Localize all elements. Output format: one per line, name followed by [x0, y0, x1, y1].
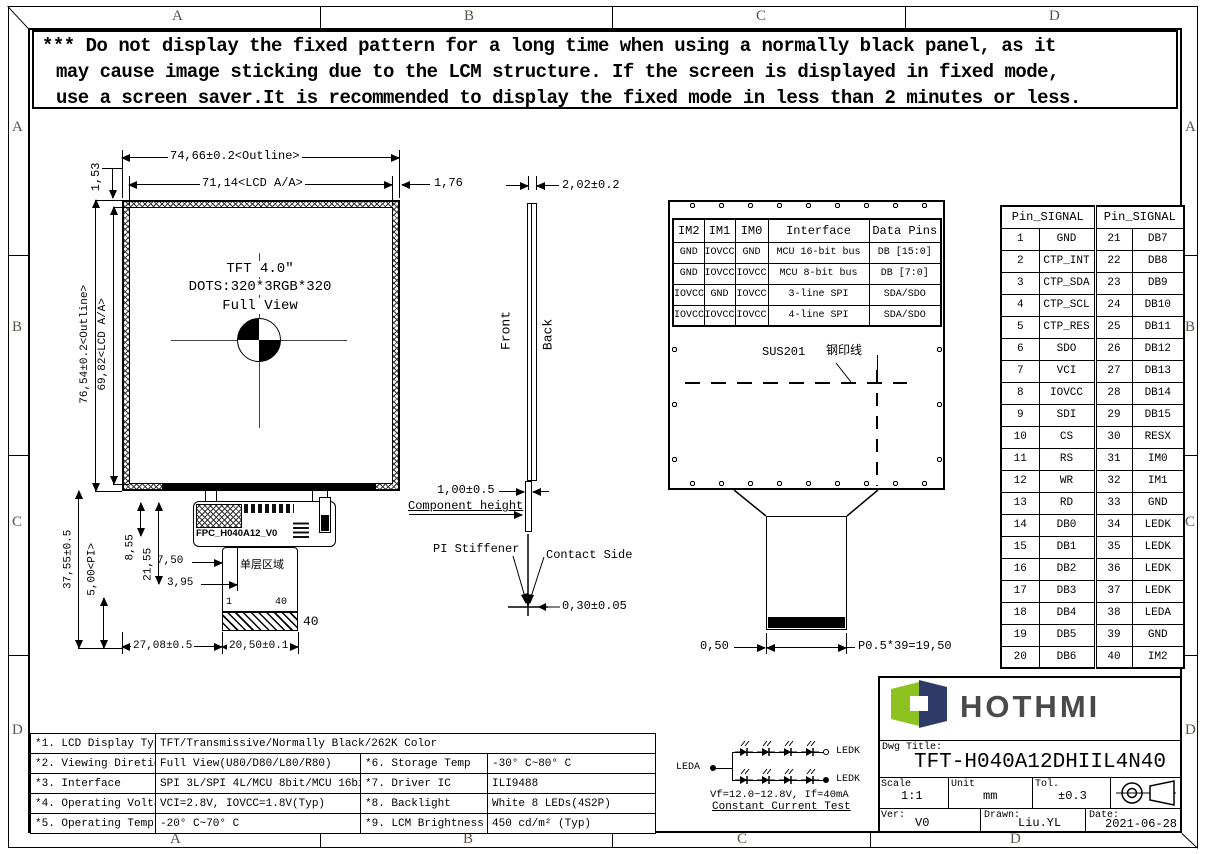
table-cell: IOVCC: [735, 263, 768, 284]
table-row: 14DB034LEDK: [1001, 514, 1184, 536]
dimension-line: [499, 491, 524, 492]
table-cell: LEDK: [1132, 580, 1184, 602]
table-cell: LEDK: [1132, 514, 1184, 536]
fpc-pin40-label: 40: [275, 597, 287, 609]
dim-fpc-2708: 27,08±0.5: [131, 640, 194, 653]
led-icon: [757, 740, 775, 756]
table-cell: 35: [1095, 536, 1132, 558]
dim-top-border: 1,53: [90, 162, 104, 192]
table-cell: IM0: [1132, 448, 1184, 470]
panel-dots-text: DOTS:320*3RGB*320: [180, 279, 340, 295]
table-row: IOVCCIOVCCIOVCC4-line SPISDA/SDO: [673, 305, 941, 326]
fpc-contact-zone: [222, 612, 298, 631]
table-cell: MCU 8-bit bus: [768, 263, 869, 284]
table-cell: 31: [1095, 448, 1132, 470]
table-cell: IOVCC: [704, 305, 735, 326]
table-cell: IOVCC: [704, 242, 735, 263]
leader-line: [846, 647, 855, 648]
dim-right-border: 1,76: [434, 177, 463, 191]
leader-line: [409, 514, 522, 515]
circuit-wire: [732, 752, 733, 780]
table-row: 13RD33GND: [1001, 492, 1184, 514]
title-block-divider: [1032, 777, 1033, 808]
table-row: *4. Operating VoltageVCI=2.8V, IOVCC=1.8…: [31, 794, 656, 814]
table-cell: VCI: [1039, 360, 1095, 382]
fpc-component-strip: [244, 504, 294, 513]
unit-label: Unit: [951, 779, 975, 791]
specification-table: *1. LCD Display Type TFT/Transmissive/No…: [30, 733, 656, 834]
drawn-label: Drawn:: [984, 810, 1020, 822]
lcd-bottom-ledge: [162, 484, 376, 491]
grid-letter-left: B: [12, 319, 22, 336]
table-cell: DB6: [1039, 646, 1095, 668]
extension-line: [95, 200, 122, 201]
table-row: 9SDI29DB15: [1001, 404, 1184, 426]
im2-header: IM2: [673, 219, 704, 242]
ver-value: V0: [915, 817, 929, 831]
table-cell: DB4: [1039, 602, 1095, 624]
title-block-divider: [1110, 777, 1111, 808]
scale-value: 1:1: [901, 790, 923, 804]
side-view-layer-line: [531, 204, 532, 480]
table-cell: IOVCC: [673, 305, 704, 326]
hothmi-logo-icon: [888, 680, 950, 728]
dimension-line: [192, 562, 222, 563]
frame-divider: [320, 833, 321, 848]
extension-line: [78, 648, 122, 649]
stamp-dash-line-v: [876, 370, 878, 486]
table-cell: 20: [1001, 646, 1039, 668]
unit-value: mm: [983, 790, 997, 804]
table-cell: GND: [673, 263, 704, 284]
frame-divider: [905, 6, 906, 28]
table-row: 17DB337LEDK: [1001, 580, 1184, 602]
fpc-single-layer-label: 单层区域: [240, 560, 284, 573]
table-row: 2CTP_INT22DB8: [1001, 250, 1184, 272]
spec-label: *1. LCD Display Type: [31, 734, 156, 754]
dimension-line: [103, 598, 104, 648]
dim-pin-pitch: P0.5*39=19,50: [858, 640, 952, 654]
projection-symbol-icon: [1116, 780, 1178, 806]
table-cell: *8. Backlight: [361, 794, 488, 814]
grid-letter-top: A: [172, 8, 183, 25]
spec-value: TFT/Transmissive/Normally Black/262K Col…: [156, 734, 656, 754]
fpc-capacitor-fill: [321, 515, 329, 531]
table-cell: 40: [1095, 646, 1132, 668]
table-row: 1GND21DB7: [1001, 228, 1184, 250]
grid-letter-bottom: C: [737, 831, 747, 848]
table-cell: 24: [1095, 294, 1132, 316]
table-cell: GND: [1132, 492, 1184, 514]
extension-line: [102, 168, 122, 169]
fpc-capacitor-label: AK: [321, 508, 327, 514]
stamp-dash-line-h: [685, 382, 907, 384]
grid-letter-left: D: [12, 722, 23, 739]
table-row: *2. Viewing DiretionFull View(U80/D80/L8…: [31, 754, 656, 774]
table-cell: 37: [1095, 580, 1132, 602]
table-cell: 15: [1001, 536, 1039, 558]
fpc-stub: [205, 491, 217, 501]
table-cell: 38: [1095, 602, 1132, 624]
panel-size-text: TFT 4.0″: [195, 261, 325, 277]
title-block-divider: [878, 808, 1182, 809]
led-icon: [735, 768, 753, 784]
table-row: 11RS31IM0: [1001, 448, 1184, 470]
table-cell: 6: [1001, 338, 1039, 360]
table-cell: 32: [1095, 470, 1132, 492]
table-cell: GND: [1132, 624, 1184, 646]
table-cell: 4: [1001, 294, 1039, 316]
table-cell: GND: [704, 284, 735, 305]
table-cell: VCI=2.8V, IOVCC=1.8V(Typ): [156, 794, 361, 814]
dimension-line: [537, 185, 559, 186]
title-block-border: [878, 676, 880, 833]
circuit-wire: [716, 768, 732, 769]
panel-view-text: Full View: [195, 298, 325, 314]
title-block-divider: [1085, 808, 1086, 833]
fpc-name-label: FPC_H040A12_V0: [196, 529, 277, 540]
side-view-leader-graphics: [480, 520, 600, 640]
im0-header: IM0: [735, 219, 768, 242]
table-cell: *7. Driver IC: [361, 774, 488, 794]
table-cell: DB0: [1039, 514, 1095, 536]
table-cell: SPI 3L/SPI 4L/MCU 8bit/MCU 16bit: [156, 774, 361, 794]
table-row: *5. Operating Temp-20° C~70° C*9. LCM Br…: [31, 814, 656, 834]
engineering-drawing-canvas: A B C D A B C D A B C D A B C D *** Do n…: [0, 0, 1207, 854]
table-row: 16DB236LEDK: [1001, 558, 1184, 580]
table-cell: 33: [1095, 492, 1132, 514]
dim-fpc-total-height: 37,55±0.5: [63, 524, 76, 594]
table-cell: *6. Storage Temp: [361, 754, 488, 774]
table-row: *1. LCD Display Type TFT/Transmissive/No…: [31, 734, 656, 754]
dimension-line: [140, 503, 141, 536]
table-row: 20DB640IM2: [1001, 646, 1184, 668]
grid-letter-left: C: [12, 514, 22, 531]
table-cell: 13: [1001, 492, 1039, 514]
table-cell: 5: [1001, 316, 1039, 338]
table-cell: *2. Viewing Diretion: [31, 754, 156, 774]
table-cell: *3. Interface: [31, 774, 156, 794]
warning-line: may cause image sticking due to the LCM …: [42, 59, 1168, 85]
back-fpc-contacts: [768, 617, 845, 628]
table-cell: 26: [1095, 338, 1132, 360]
side-view-glass: [527, 203, 537, 481]
interface-mode-table: IM2 IM1 IM0 Interface Data Pins GNDIOVCC…: [672, 218, 942, 327]
dim-fpc-2050: 20,50±0.1: [227, 640, 290, 653]
grid-letter-right: C: [1185, 514, 1195, 531]
dimension-line: [95, 200, 96, 491]
circuit-terminal: [823, 777, 829, 783]
table-cell: 28: [1095, 382, 1132, 404]
table-cell: RS: [1039, 448, 1095, 470]
pin-signal-header-right: Pin_SIGNAL: [1095, 206, 1184, 228]
table-cell: IOVCC: [673, 284, 704, 305]
table-cell: CS: [1039, 426, 1095, 448]
table-cell: -30° C~80° C: [488, 754, 656, 774]
tol-label: Tol.: [1035, 779, 1059, 791]
table-row: *3. InterfaceSPI 3L/SPI 4L/MCU 8bit/MCU …: [31, 774, 656, 794]
table-cell: DB5: [1039, 624, 1095, 646]
table-cell: 450 cd/m² (Typ): [488, 814, 656, 834]
table-cell: GND: [673, 242, 704, 263]
table-cell: SDA/SDO: [869, 284, 941, 305]
dim-outline-height: 76,54±0.2<Outline>: [79, 282, 92, 407]
table-cell: *5. Operating Temp: [31, 814, 156, 834]
table-cell: WR: [1039, 470, 1095, 492]
table-cell: -20° C~70° C: [156, 814, 361, 834]
drawn-value: Liu.YL: [1018, 817, 1061, 831]
dimension-line: [112, 168, 113, 198]
dwg-title-value: TFT-H040A12DHIIL4N40: [900, 751, 1180, 775]
table-cell: LEDK: [1132, 536, 1184, 558]
tol-value: ±0.3: [1058, 790, 1087, 804]
table-row: 6SDO26DB12: [1001, 338, 1184, 360]
grid-letter-right: D: [1185, 722, 1196, 739]
table-cell: 30: [1095, 426, 1132, 448]
table-cell: DB11: [1132, 316, 1184, 338]
table-cell: 14: [1001, 514, 1039, 536]
table-cell: 29: [1095, 404, 1132, 426]
side-back-label: Back: [542, 314, 557, 354]
table-cell: DB10: [1132, 294, 1184, 316]
table-cell: 10: [1001, 426, 1039, 448]
dim-fpc-395: 3,95: [167, 577, 193, 590]
table-row: 10CS30RESX: [1001, 426, 1184, 448]
table-cell: CTP_SDA: [1039, 272, 1095, 294]
backlight-vf-text: Vf=12.0~12.8V, If=40mA: [710, 789, 849, 801]
warning-line: use a screen saver.It is recommended to …: [42, 85, 1168, 111]
extension-line: [113, 484, 129, 485]
leda-label: LEDA: [676, 762, 700, 774]
table-cell: DB9: [1132, 272, 1184, 294]
dim-fpc-855: 8,55: [125, 530, 138, 564]
side-front-label: Front: [500, 307, 515, 353]
table-cell: GND: [735, 242, 768, 263]
frame-divider: [870, 833, 871, 848]
table-cell: DB [7:0]: [869, 263, 941, 284]
grid-letter-right: A: [1185, 119, 1196, 136]
fpc-pin1-label: 1: [226, 597, 232, 609]
grid-letter-top: D: [1049, 8, 1060, 25]
table-cell: 22: [1095, 250, 1132, 272]
grid-letter-top: B: [464, 8, 474, 25]
grid-letter-left: A: [12, 119, 23, 136]
led-icon: [779, 740, 797, 756]
table-cell: 12: [1001, 470, 1039, 492]
dimension-line: [734, 647, 765, 648]
led-icon: [757, 768, 775, 784]
mount-hole-row: [678, 480, 935, 487]
table-cell: 4-line SPI: [768, 305, 869, 326]
table-cell: IM1: [1132, 470, 1184, 492]
frame-divider: [8, 455, 28, 456]
dim-component-height: 1,00±0.5: [437, 484, 495, 498]
table-cell: IOVCC: [735, 305, 768, 326]
table-cell: DB3: [1039, 580, 1095, 602]
table-cell: 39: [1095, 624, 1132, 646]
ledk-label-bottom: LEDK: [836, 774, 860, 786]
dimension-line: [78, 491, 79, 648]
title-block-border: [878, 676, 1182, 678]
ver-label: Ver:: [881, 810, 905, 822]
fpc-component-block: [196, 504, 242, 528]
table-row: GNDIOVCCGNDMCU 16-bit busDB [15:0]: [673, 242, 941, 263]
title-block-divider: [948, 777, 949, 808]
warning-line: *** Do not display the fixed pattern for…: [42, 33, 1168, 59]
table-cell: DB8: [1132, 250, 1184, 272]
table-cell: DB [15:0]: [869, 242, 941, 263]
title-block-divider: [878, 777, 1182, 778]
table-cell: DB7: [1132, 228, 1184, 250]
table-cell: 19: [1001, 624, 1039, 646]
table-cell: 2: [1001, 250, 1039, 272]
table-row: 8IOVCC28DB14: [1001, 382, 1184, 404]
table-cell: 3: [1001, 272, 1039, 294]
title-block-divider: [980, 808, 981, 833]
backlight-test-text: Constant Current Test: [712, 801, 851, 814]
table-cell: 27: [1095, 360, 1132, 382]
date-value: 2021-06-28: [1105, 818, 1177, 832]
table-cell: IOVCC: [1039, 382, 1095, 404]
dim-fpc-thickness: 0,30±0.05: [562, 600, 627, 614]
table-cell: 3-line SPI: [768, 284, 869, 305]
led-icon: [801, 768, 819, 784]
table-cell: SDA/SDO: [869, 305, 941, 326]
table-header-row: IM2 IM1 IM0 Interface Data Pins: [673, 219, 941, 242]
table-cell: 9: [1001, 404, 1039, 426]
led-icon: [779, 768, 797, 784]
table-cell: GND: [1039, 228, 1095, 250]
dimension-line: [506, 185, 528, 186]
component-height-label: Component height: [408, 500, 523, 514]
dim-thickness: 2,02±0.2: [562, 179, 620, 193]
table-cell: RESX: [1132, 426, 1184, 448]
dimension-line: [767, 647, 846, 648]
dimension-line: [201, 584, 237, 585]
table-row: IOVCCGNDIOVCC3-line SPISDA/SDO: [673, 284, 941, 305]
table-cell: CTP_RES: [1039, 316, 1095, 338]
back-fpc-tail: [766, 516, 847, 630]
dimension-line: [158, 503, 159, 584]
extension-line: [113, 207, 129, 208]
table-row: 15DB135LEDK: [1001, 536, 1184, 558]
grid-letter-right: B: [1185, 319, 1195, 336]
table-cell: 16: [1001, 558, 1039, 580]
table-cell: White 8 LEDs(4S2P): [488, 794, 656, 814]
table-cell: 34: [1095, 514, 1132, 536]
frame-divider: [612, 6, 613, 28]
table-row: 12WR32IM1: [1001, 470, 1184, 492]
pin-signal-header-left: Pin_SIGNAL: [1001, 206, 1095, 228]
dim-fpc-2155: 21,55: [143, 543, 156, 585]
dim-pin-margin: 0,50: [700, 640, 729, 654]
dimension-line: [402, 184, 430, 185]
grid-letter-top: C: [756, 8, 766, 25]
table-cell: MCU 16-bit bus: [768, 242, 869, 263]
table-row: GNDIOVCCIOVCCMCU 8-bit busDB [7:0]: [673, 263, 941, 284]
table-cell: IOVCC: [735, 284, 768, 305]
table-cell: LEDK: [1132, 558, 1184, 580]
frame-divider: [8, 655, 28, 656]
registration-mark: [237, 318, 281, 362]
table-row: 3CTP_SDA23DB9: [1001, 272, 1184, 294]
extension-line: [95, 491, 122, 492]
table-row: 18DB438LEDA: [1001, 602, 1184, 624]
table-cell: IM2: [1132, 646, 1184, 668]
table-cell: *9. LCM Brightness: [361, 814, 488, 834]
table-cell: RD: [1039, 492, 1095, 514]
fpc-connector-grill: [293, 521, 309, 538]
table-cell: ILI9488: [488, 774, 656, 794]
table-cell: 18: [1001, 602, 1039, 624]
table-cell: CTP_INT: [1039, 250, 1095, 272]
table-row: 7VCI27DB13: [1001, 360, 1184, 382]
table-cell: 25: [1095, 316, 1132, 338]
dim-outline-width: 74,66±0.2<Outline>: [168, 150, 302, 164]
table-cell: DB2: [1039, 558, 1095, 580]
dimension-line: [533, 491, 549, 492]
table-cell: 17: [1001, 580, 1039, 602]
warning-note: *** Do not display the fixed pattern for…: [32, 30, 1178, 109]
hothmi-logo-text: HOTHMI: [960, 689, 1100, 725]
pin-signal-table: Pin_SIGNAL Pin_SIGNAL 1GND21DB72CTP_INT2…: [1000, 205, 1185, 669]
ledk-label-top: LEDK: [836, 746, 860, 758]
dimension-line: [113, 207, 114, 484]
circuit-terminal: [823, 749, 829, 755]
table-row: 19DB539GND: [1001, 624, 1184, 646]
table-cell: DB15: [1132, 404, 1184, 426]
sus-material-label: SUS201: [762, 346, 805, 360]
table-cell: DB14: [1132, 382, 1184, 404]
table-cell: IOVCC: [704, 263, 735, 284]
frame-divider: [320, 6, 321, 28]
dim-active-height: 69,82<LCD A/A>: [97, 297, 110, 392]
table-row: 5CTP_RES25DB11: [1001, 316, 1184, 338]
table-header-row: Pin_SIGNAL Pin_SIGNAL: [1001, 206, 1184, 228]
table-cell: 23: [1095, 272, 1132, 294]
dim-fpc-pi: 5,00<PI>: [87, 538, 100, 600]
table-cell: 8: [1001, 382, 1039, 404]
dim-fpc-750: 7,50: [157, 555, 183, 568]
im1-header: IM1: [704, 219, 735, 242]
table-cell: DB12: [1132, 338, 1184, 360]
table-cell: DB1: [1039, 536, 1095, 558]
mount-hole-row: [678, 202, 935, 209]
grid-letter-bottom: D: [1010, 831, 1021, 848]
table-cell: SDI: [1039, 404, 1095, 426]
title-block-divider: [878, 740, 1182, 741]
table-cell: 7: [1001, 360, 1039, 382]
fpc-pin-count: 40: [303, 615, 319, 630]
led-icon: [735, 740, 753, 756]
table-cell: LEDA: [1132, 602, 1184, 624]
table-row: 4CTP_SCL24DB10: [1001, 294, 1184, 316]
frame-divider: [612, 833, 613, 848]
frame-divider: [8, 255, 28, 256]
table-cell: 11: [1001, 448, 1039, 470]
table-cell: 21: [1095, 228, 1132, 250]
dim-active-width: 71,14<LCD A/A>: [200, 177, 305, 191]
interface-header: Interface: [768, 219, 869, 242]
table-cell: Full View(U80/D80/L80/R80): [156, 754, 361, 774]
table-cell: *4. Operating Voltage: [31, 794, 156, 814]
table-cell: DB13: [1132, 360, 1184, 382]
table-cell: CTP_SCL: [1039, 294, 1095, 316]
table-cell: SDO: [1039, 338, 1095, 360]
table-cell: 1: [1001, 228, 1039, 250]
led-icon: [801, 740, 819, 756]
steel-stamp-leader: [820, 355, 890, 390]
